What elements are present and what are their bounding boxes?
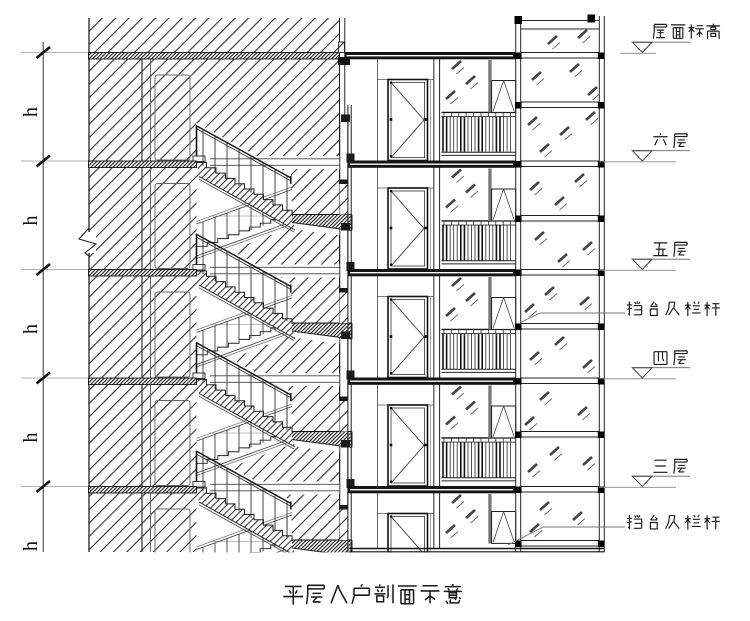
svg-text:h: h xyxy=(20,216,42,226)
svg-text:h: h xyxy=(20,541,42,551)
svg-text:h: h xyxy=(20,324,42,334)
svg-text:h: h xyxy=(20,107,42,117)
svg-text:h: h xyxy=(20,433,42,443)
